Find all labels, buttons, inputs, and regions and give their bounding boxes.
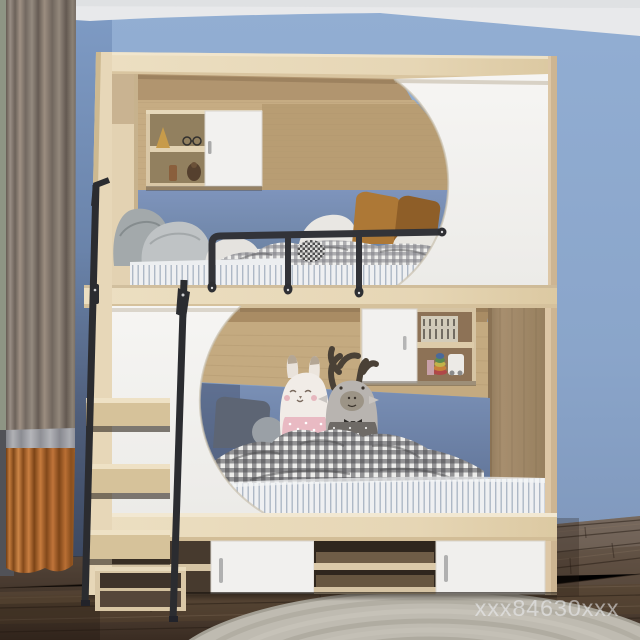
svg-text:xxx84630xxx: xxx84630xxx: [475, 595, 620, 621]
